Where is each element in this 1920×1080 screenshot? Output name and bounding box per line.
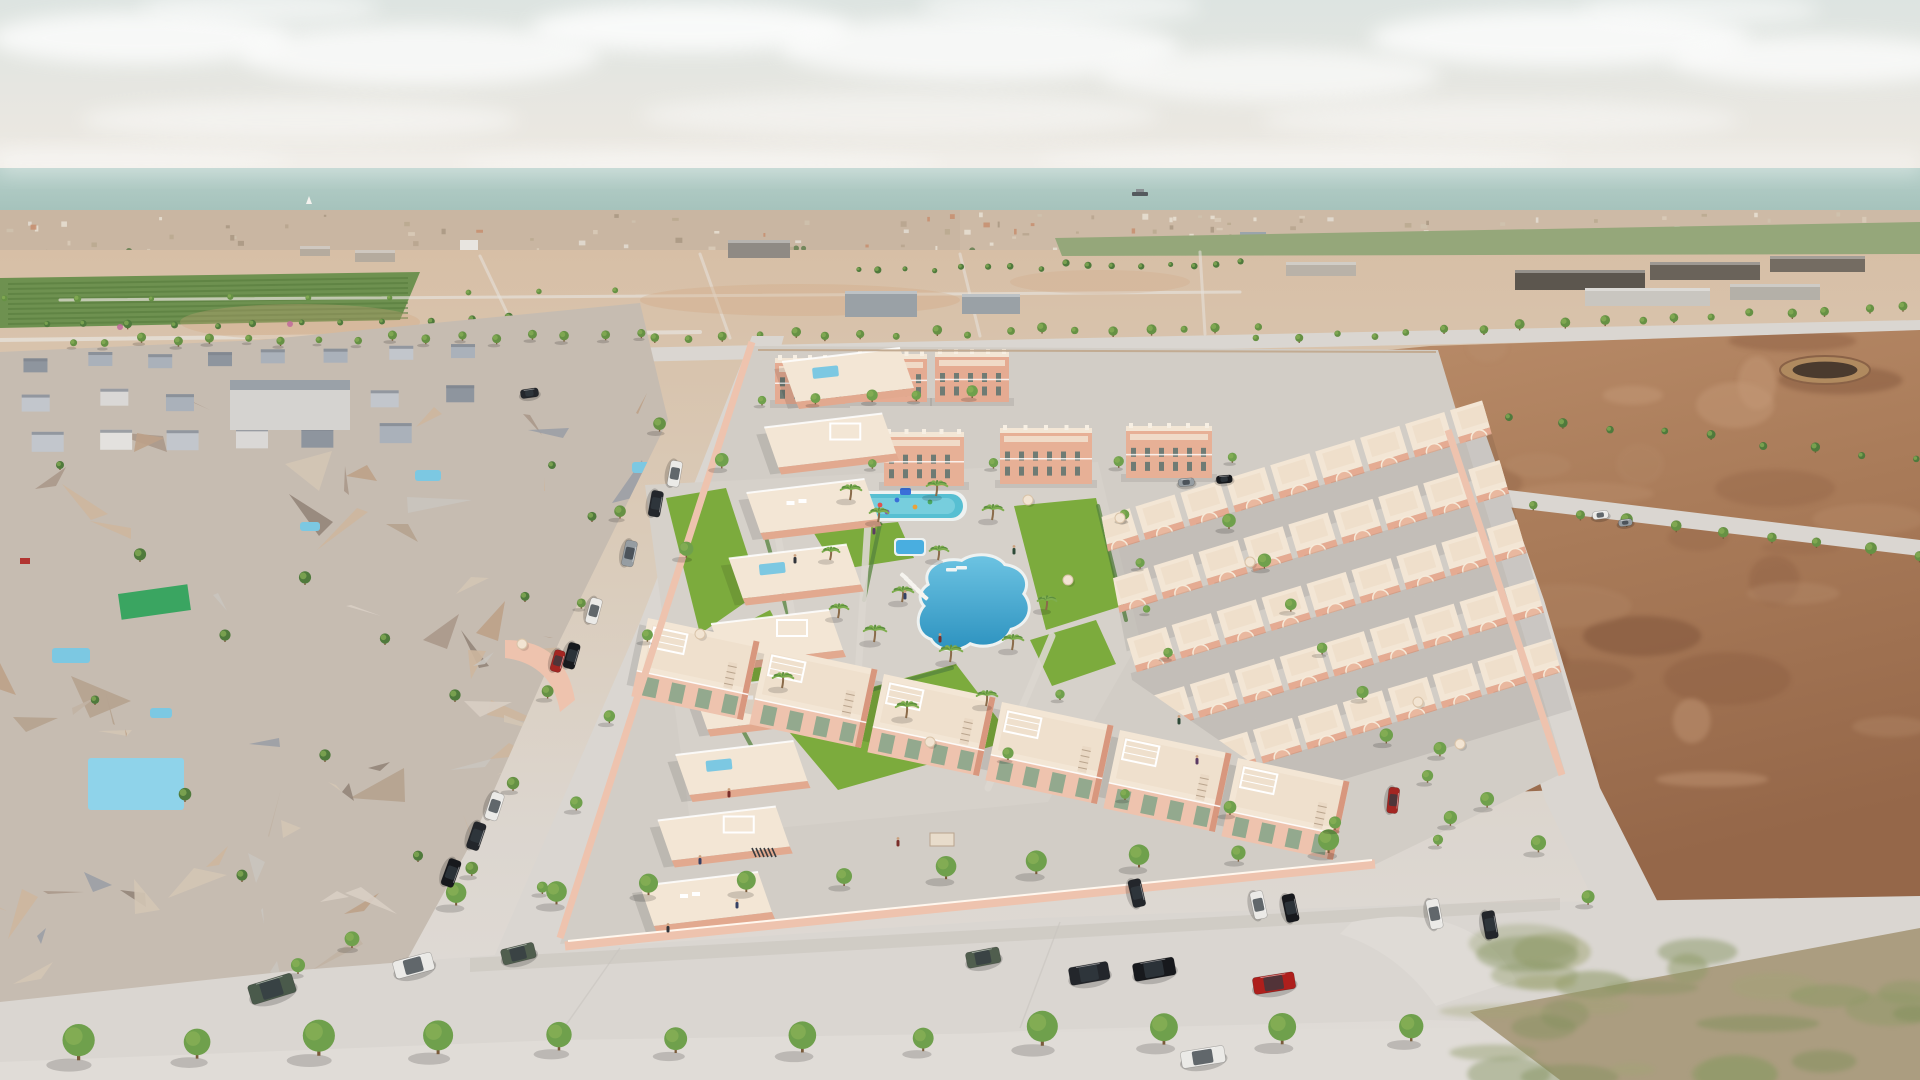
window — [996, 373, 1001, 382]
tree-highlight — [537, 289, 540, 292]
warehouse-roof-edge — [1585, 288, 1710, 291]
cloud — [1100, 49, 1440, 101]
person-head — [897, 837, 900, 840]
tree-highlight — [124, 321, 129, 326]
warehouse-roof-edge — [1515, 270, 1645, 273]
tree-shadow — [636, 641, 651, 645]
tree-highlight — [640, 876, 650, 886]
distant-building — [404, 222, 410, 226]
tree-highlight — [1139, 264, 1142, 267]
distant-building — [964, 230, 970, 235]
distant-building — [476, 230, 483, 233]
old-house-roof — [100, 430, 132, 433]
distant-building — [1594, 219, 1598, 223]
tree-highlight — [1286, 600, 1292, 606]
tree-highlight — [1434, 836, 1440, 842]
distant-building — [1253, 217, 1256, 221]
tree-highlight — [1746, 309, 1750, 313]
rough-grass — [1696, 1015, 1819, 1032]
tree-highlight — [821, 333, 826, 338]
parapet-post — [922, 429, 926, 434]
tree-shadow — [653, 1052, 685, 1061]
tree-highlight — [1583, 892, 1590, 899]
tree-highlight — [1532, 837, 1540, 845]
tree-shadow — [383, 340, 396, 344]
tree-highlight — [1253, 335, 1257, 339]
tree-highlight — [643, 630, 649, 636]
distant-building — [1227, 223, 1231, 225]
tree-highlight — [548, 1024, 562, 1038]
tree-shadow — [1473, 807, 1492, 813]
entrance-sign — [930, 833, 954, 846]
tree-highlight — [875, 267, 879, 271]
tree-highlight — [305, 1023, 323, 1041]
tree-shadow — [1427, 756, 1445, 761]
tree-shadow — [536, 698, 553, 703]
tree-highlight — [175, 337, 180, 342]
tree-highlight — [893, 334, 897, 338]
tree-shadow — [597, 340, 609, 344]
roof-lounger — [799, 499, 807, 503]
tree-highlight — [1515, 320, 1520, 325]
tree-highlight — [1813, 538, 1818, 543]
tree-highlight — [857, 331, 862, 336]
old-pool — [415, 470, 441, 481]
palm-trunk — [992, 509, 993, 520]
old-pool — [300, 522, 320, 531]
old-house-roof — [100, 389, 128, 392]
car-glass — [1182, 479, 1190, 485]
tree-highlight — [1707, 431, 1712, 436]
tree-shadow — [1575, 904, 1593, 909]
tree-highlight — [292, 960, 300, 968]
tree-highlight — [135, 549, 142, 556]
tree-highlight — [538, 883, 544, 889]
parapet-post — [1085, 425, 1089, 430]
tree-highlight — [1038, 324, 1043, 329]
tree-highlight — [1506, 414, 1510, 418]
tree-highlight — [91, 696, 96, 701]
tree-highlight — [1232, 847, 1240, 855]
person-head — [667, 923, 670, 926]
window — [889, 469, 894, 478]
distant-building — [1290, 226, 1296, 230]
old-house-roof — [451, 344, 475, 347]
tree-shadow — [272, 346, 283, 349]
old-house-roof — [208, 352, 232, 355]
roof-terrace — [1004, 436, 1088, 442]
window — [1173, 462, 1178, 471]
tree-highlight — [1640, 318, 1644, 322]
person — [939, 636, 942, 643]
tree-shadow — [647, 431, 665, 436]
dirt-patch — [1673, 698, 1711, 743]
person — [699, 858, 702, 865]
tree-highlight — [1381, 730, 1388, 737]
warehouse-roof-edge — [355, 250, 395, 253]
tree-shadow — [608, 518, 624, 523]
tree-highlight — [216, 324, 219, 327]
window — [1061, 467, 1066, 476]
distant-building — [1836, 212, 1840, 216]
circular-structure-pit — [1793, 362, 1858, 379]
tree-shadow — [534, 1049, 570, 1059]
tree-highlight — [316, 337, 320, 341]
tree-highlight — [1441, 326, 1445, 330]
rough-grass — [1609, 1063, 1655, 1076]
tree-shadow — [417, 344, 429, 347]
person — [728, 791, 731, 798]
distant-building — [7, 229, 14, 232]
old-house-roof — [32, 432, 64, 435]
tree-highlight — [459, 332, 464, 337]
window — [945, 469, 950, 478]
distant-building — [1215, 218, 1222, 222]
window — [917, 469, 922, 478]
tree-highlight — [1063, 260, 1067, 264]
tree-highlight — [1085, 262, 1089, 266]
tree-highlight — [1662, 428, 1666, 432]
tree-highlight — [1270, 1016, 1285, 1031]
person — [873, 528, 876, 535]
play-equipment — [878, 503, 883, 508]
tree-shadow — [1373, 743, 1392, 748]
tree-highlight — [965, 332, 969, 336]
tree-highlight — [1213, 262, 1217, 266]
tree-highlight — [1357, 687, 1364, 694]
distant-building — [31, 225, 37, 230]
tree-highlight — [680, 543, 688, 551]
tree-shadow — [1115, 800, 1129, 804]
tree-highlight — [306, 295, 309, 298]
parapet-post — [793, 355, 797, 360]
tree-highlight — [1136, 559, 1141, 564]
palm-shadow — [935, 660, 957, 667]
tree-highlight — [989, 459, 994, 464]
palm-trunk — [1012, 639, 1013, 650]
tree-highlight — [1788, 309, 1793, 314]
tree-highlight — [757, 332, 761, 336]
distant-building — [1862, 217, 1866, 223]
person — [1196, 758, 1199, 765]
parasol — [517, 639, 527, 649]
tree-highlight — [1607, 427, 1611, 431]
distant-building — [1023, 233, 1030, 235]
roof-terrace — [1130, 434, 1208, 440]
tree-shadow — [629, 894, 656, 902]
tree-highlight — [685, 336, 689, 340]
tree-highlight — [967, 386, 973, 392]
parapet-post — [905, 429, 909, 434]
tree-highlight — [74, 296, 78, 300]
tree-highlight — [1007, 264, 1011, 268]
tree-highlight — [57, 462, 61, 466]
tree-highlight — [493, 335, 498, 340]
tree-shadow — [351, 345, 362, 348]
tree-shadow — [436, 904, 465, 912]
tree-highlight — [1027, 853, 1039, 865]
distant-building — [1327, 217, 1333, 221]
distant-building — [1500, 222, 1505, 226]
distant-building — [413, 241, 418, 246]
person-head — [736, 899, 739, 902]
palm-trunk — [850, 489, 851, 500]
palm-trunk — [906, 706, 907, 718]
parapet-post — [1148, 423, 1152, 428]
tree-highlight — [1169, 262, 1172, 265]
person-head — [728, 788, 731, 791]
tree-shadow — [864, 468, 876, 471]
parapet-post — [1186, 423, 1190, 428]
distant-building — [68, 241, 71, 246]
tree-highlight — [237, 871, 243, 877]
cloud — [640, 93, 1160, 137]
old-house-roof — [23, 358, 47, 361]
parasol — [1063, 575, 1073, 585]
tree-highlight — [299, 320, 302, 323]
tree-shadow — [459, 875, 477, 880]
tree-highlight — [1561, 319, 1566, 324]
tree-shadow — [1223, 462, 1236, 466]
tree-shadow — [1251, 568, 1270, 573]
window — [1131, 462, 1136, 471]
tree-shadow — [805, 404, 819, 408]
old-house-roof — [261, 349, 285, 352]
dirt-patch — [1747, 582, 1840, 604]
tree-highlight — [1114, 457, 1120, 463]
tree-highlight — [1147, 325, 1152, 330]
tree-highlight — [1760, 443, 1764, 447]
distant-building — [945, 229, 950, 235]
distant-building — [624, 244, 628, 248]
parapet-post — [957, 429, 961, 434]
tree-shadow — [169, 346, 182, 350]
warehouse-roof-edge — [1650, 262, 1760, 265]
palm-shadow — [1033, 609, 1051, 615]
tree-shadow — [907, 401, 920, 405]
distant-building — [1031, 223, 1035, 226]
tree-shadow — [1416, 782, 1432, 787]
distant-building — [1169, 218, 1172, 223]
tree-highlight — [300, 573, 307, 580]
parapet-post — [920, 351, 924, 356]
distant-building — [763, 233, 765, 237]
tree-highlight — [758, 397, 763, 402]
distant-building — [632, 220, 636, 222]
tree-shadow — [564, 810, 581, 815]
tree-highlight — [937, 858, 948, 869]
tree-highlight — [1039, 267, 1042, 270]
parapet-post — [1129, 423, 1133, 428]
palm-shadow — [836, 499, 856, 506]
palm-shadow — [972, 705, 992, 712]
tree-highlight — [666, 1030, 679, 1043]
tree-shadow — [1015, 873, 1045, 881]
tree-highlight — [1435, 743, 1442, 750]
parapet-post — [940, 429, 944, 434]
person-head — [873, 525, 876, 528]
distant-building — [579, 241, 586, 246]
tree-shadow — [598, 723, 614, 728]
tree-shadow — [1350, 699, 1367, 704]
palm-trunk — [938, 550, 939, 560]
palm-trunk — [986, 695, 987, 706]
distant-building — [408, 232, 415, 236]
distant-building — [901, 221, 907, 227]
parapet-post — [1205, 423, 1209, 428]
distant-building — [1217, 228, 1223, 230]
tree-shadow — [754, 405, 766, 408]
tree-highlight — [422, 335, 427, 340]
tree-highlight — [249, 321, 253, 325]
tree-highlight — [1821, 308, 1826, 313]
window — [1047, 467, 1052, 476]
tree-shadow — [531, 893, 546, 897]
distant-building — [795, 240, 801, 243]
parapet-post — [1167, 423, 1171, 428]
tree-highlight — [792, 328, 797, 333]
old-house-roof — [166, 394, 194, 397]
pool-steps — [956, 566, 967, 570]
tree-highlight — [1670, 314, 1675, 319]
person-head — [699, 855, 702, 858]
roof-lounger — [787, 501, 795, 505]
tree-shadow — [1119, 866, 1148, 874]
tree-shadow — [1323, 829, 1340, 834]
tree-highlight — [1056, 690, 1061, 695]
distant-building — [1153, 230, 1157, 234]
old-house-roof — [371, 390, 399, 393]
window — [1187, 462, 1192, 471]
dirt-patch — [1738, 356, 1776, 409]
tree-shadow — [672, 557, 692, 563]
tree-shadow — [727, 891, 754, 899]
tree-highlight — [1121, 790, 1126, 795]
tree-highlight — [857, 267, 860, 270]
palm-trunk — [830, 551, 831, 560]
tree-highlight — [1423, 771, 1429, 777]
window — [1131, 448, 1136, 457]
tree-highlight — [1577, 511, 1582, 516]
tree-highlight — [389, 331, 394, 336]
rough-grass — [1667, 954, 1708, 984]
tree-shadow — [408, 1053, 450, 1065]
tree-highlight — [71, 340, 75, 344]
tree-shadow — [1051, 700, 1064, 704]
tree-highlight — [80, 321, 84, 325]
tree-highlight — [1225, 802, 1232, 809]
parapet-post — [905, 351, 909, 356]
tree-highlight — [1003, 749, 1009, 755]
play-equipment — [895, 498, 900, 503]
old-house-roof — [380, 423, 412, 426]
parasol — [695, 629, 705, 639]
person-head — [1178, 715, 1181, 718]
distant-building — [91, 243, 96, 248]
distant-building — [1426, 221, 1429, 225]
warehouse — [845, 291, 917, 317]
tree-highlight — [912, 391, 917, 396]
tree-highlight — [1008, 328, 1012, 332]
tree-shadow — [488, 344, 501, 348]
warehouse-roof-edge — [1286, 262, 1356, 265]
distant-building — [61, 221, 67, 226]
parasol — [1455, 739, 1465, 749]
tree-highlight — [1481, 793, 1489, 801]
car-glass — [1389, 794, 1398, 807]
tree-highlight — [1255, 324, 1259, 328]
old-house-roof — [389, 346, 413, 349]
tree-highlight — [615, 507, 621, 513]
tree-highlight — [180, 789, 187, 796]
distant-building — [672, 218, 679, 221]
roof-lounger — [692, 892, 700, 896]
apartment-block — [1126, 426, 1212, 478]
tree-highlight — [1072, 327, 1076, 331]
palm-trunk — [874, 630, 875, 642]
tree-highlight — [1335, 331, 1339, 335]
distant-building — [805, 221, 810, 226]
tree-shadow — [67, 347, 77, 350]
distant-building — [1768, 219, 1771, 223]
warehouse-roof-edge — [962, 294, 1020, 297]
distant-building — [442, 229, 446, 235]
tree-highlight — [220, 631, 226, 637]
tree-shadow — [1215, 528, 1234, 533]
tree-highlight — [149, 297, 152, 300]
distant-building — [226, 225, 230, 228]
dirt-patch — [1664, 652, 1791, 705]
tree-shadow — [1217, 814, 1235, 819]
tree-highlight — [508, 778, 515, 785]
dirt-patch — [1715, 469, 1835, 507]
tree-highlight — [1866, 543, 1873, 550]
tree-highlight — [837, 870, 846, 879]
distant-building — [159, 217, 162, 220]
tree-highlight — [1372, 334, 1376, 338]
warehouse-roof-edge — [845, 291, 917, 294]
tree-highlight — [1164, 649, 1169, 654]
tree-shadow — [1136, 1043, 1175, 1054]
tree-highlight — [1867, 305, 1872, 310]
tree-highlight — [588, 513, 593, 518]
distant-building — [1754, 213, 1758, 217]
tree-highlight — [1152, 1016, 1167, 1031]
distant-building — [904, 229, 909, 233]
red-object — [20, 558, 30, 564]
tree-shadow — [902, 1050, 931, 1058]
pool-steps — [946, 568, 957, 572]
tree-shadow — [1307, 852, 1337, 860]
tree-highlight — [903, 267, 906, 270]
tree-shadow — [1224, 861, 1244, 867]
palm-shadow — [922, 495, 942, 502]
cloud — [80, 100, 520, 140]
warehouse-roof-edge — [1770, 256, 1865, 259]
rough-grass — [1511, 1015, 1576, 1040]
distant-building — [1300, 219, 1303, 223]
tree-shadow — [337, 947, 358, 953]
tree-shadow — [287, 1054, 332, 1067]
old-house-roof — [148, 354, 172, 357]
tree-highlight — [1530, 502, 1535, 507]
dirt-patch — [1656, 772, 1768, 787]
palm-trunk — [1046, 600, 1047, 610]
person — [904, 593, 907, 600]
palm-trunk — [878, 512, 879, 522]
tree-shadow — [554, 341, 567, 345]
distant-building — [530, 238, 534, 241]
